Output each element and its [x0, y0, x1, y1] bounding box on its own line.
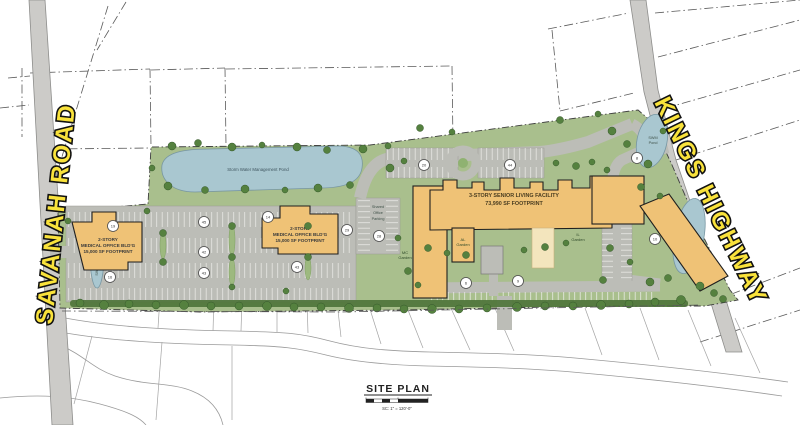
- site-plan-svg: Storm Water Management Pond SWM Pond SWM…: [0, 0, 800, 425]
- svg-text:19: 19: [111, 224, 116, 229]
- parking-count-badge: 42: [199, 247, 210, 258]
- tree-icon: [644, 160, 652, 168]
- tree-icon: [607, 245, 614, 252]
- tree-icon: [290, 303, 298, 311]
- parking-count-badge: 43: [199, 268, 210, 279]
- svg-text:10: 10: [653, 237, 658, 242]
- tree-icon: [259, 142, 265, 148]
- east-medical-label-3: 15,000 SF FOOTPRINT: [275, 238, 324, 243]
- entry-canopy: [481, 246, 503, 274]
- tree-icon: [595, 111, 601, 117]
- parking-count-badge: 20: [419, 160, 430, 171]
- tree-icon: [400, 305, 408, 313]
- tree-icon: [597, 301, 606, 310]
- tree-icon: [283, 288, 289, 294]
- tree-icon: [229, 223, 236, 230]
- storm-water-pond-label: Storm Water Management Pond: [227, 167, 289, 172]
- tree-icon: [677, 296, 686, 305]
- parking-count-badge: 16: [105, 272, 116, 283]
- tree-icon: [373, 304, 381, 312]
- tree-icon: [696, 282, 704, 290]
- svg-text:29: 29: [345, 228, 350, 233]
- scale-note: SC: 1" = 120'-0": [382, 406, 412, 411]
- tree-icon: [657, 193, 663, 199]
- tree-icon: [521, 247, 527, 253]
- shared-parking-label-3: Parking: [372, 217, 385, 221]
- tree-icon: [483, 304, 491, 312]
- tree-icon: [386, 164, 394, 172]
- parking-count-badge: 28: [374, 231, 385, 242]
- svg-text:43: 43: [295, 265, 300, 270]
- drawing-title: SITE PLAN: [366, 383, 430, 395]
- tree-icon: [563, 240, 569, 246]
- al-garden-label-2: Garden: [456, 242, 469, 247]
- tree-icon: [711, 290, 718, 297]
- shared-parking-label-2: Office: [373, 211, 383, 215]
- tree-icon: [324, 147, 331, 154]
- parking-count-badge: 44: [505, 160, 516, 171]
- tree-icon: [202, 187, 209, 194]
- tree-icon: [293, 143, 301, 151]
- tree-icon: [317, 303, 325, 311]
- svg-text:45: 45: [202, 220, 207, 225]
- tree-icon: [624, 141, 631, 148]
- tree-icon: [164, 182, 172, 190]
- tree-icon: [229, 284, 235, 290]
- tree-icon: [314, 184, 322, 192]
- shared-parking-label-1: Shared: [372, 205, 384, 209]
- tree-icon: [401, 158, 407, 164]
- mc-garden-label-2: Garden: [398, 255, 411, 260]
- senior-living-label-2: 73,990 SF FOOTPRINT: [485, 201, 543, 207]
- svg-text:16: 16: [108, 275, 113, 280]
- tree-icon: [305, 254, 312, 261]
- tree-icon: [385, 143, 391, 149]
- tree-icon: [100, 301, 109, 310]
- tree-icon: [720, 296, 727, 303]
- tree-icon: [359, 145, 367, 153]
- tree-icon: [415, 282, 421, 288]
- tree-icon: [455, 305, 463, 313]
- tree-icon: [569, 302, 577, 310]
- tree-icon: [627, 259, 633, 265]
- tree-icon: [428, 305, 437, 314]
- tree-icon: [542, 244, 549, 251]
- tree-icon: [125, 300, 133, 308]
- west-medical-label-1: 2-STORY: [98, 237, 118, 242]
- parking-count-badge: 43: [292, 262, 303, 273]
- tree-icon: [557, 117, 564, 124]
- tree-icon: [263, 302, 272, 311]
- tree-icon: [541, 302, 549, 310]
- tree-icon: [235, 302, 243, 310]
- tree-icon: [638, 184, 645, 191]
- tree-icon: [282, 187, 288, 193]
- parking-count-badge: 8: [632, 153, 643, 164]
- parking-count-badge: 9: [513, 276, 524, 287]
- tree-icon: [651, 298, 659, 306]
- tree-icon: [600, 277, 607, 284]
- tree-icon: [160, 259, 167, 266]
- tree-icon: [180, 301, 189, 310]
- tree-icon: [449, 129, 455, 135]
- ne-pond-label-1: SWM: [648, 136, 657, 140]
- tree-icon: [152, 301, 160, 309]
- tree-icon: [405, 268, 412, 275]
- parking-count-badge: 6: [461, 278, 472, 289]
- tree-icon: [241, 185, 249, 193]
- parking-count-badge: 29: [342, 225, 353, 236]
- tree-icon: [347, 182, 354, 189]
- tree-icon: [229, 254, 236, 261]
- east-medical-label-2: MEDICAL OFFICE BLD'G: [273, 232, 328, 237]
- svg-text:42: 42: [202, 250, 207, 255]
- site-plan-drawing: Storm Water Management Pond SWM Pond SWM…: [0, 0, 800, 425]
- svg-text:43: 43: [202, 271, 207, 276]
- tree-icon: [160, 230, 167, 237]
- svg-text:20: 20: [422, 163, 427, 168]
- tree-icon: [553, 160, 559, 166]
- tree-icon: [604, 167, 610, 173]
- svg-text:44: 44: [508, 163, 513, 168]
- tree-icon: [665, 275, 672, 282]
- tree-icon: [646, 278, 654, 286]
- south-drive: [420, 286, 660, 288]
- svg-text:14: 14: [266, 215, 271, 220]
- tree-icon: [149, 165, 155, 171]
- il-garden-label-2: Garden: [571, 237, 584, 242]
- tree-icon: [228, 143, 236, 151]
- tree-icon: [425, 245, 432, 252]
- west-medical-label-2: MEDICAL OFFICE BLD'G: [81, 243, 136, 248]
- parking-count-badge: 19: [108, 221, 119, 232]
- tree-icon: [345, 304, 354, 313]
- parking-count-badge: 45: [199, 217, 210, 228]
- west-medical-label-3: 15,000 SF FOOTPRINT: [83, 249, 132, 254]
- tree-icon: [608, 127, 616, 135]
- tree-icon: [395, 235, 401, 241]
- tree-icon: [444, 250, 450, 256]
- tree-icon: [589, 159, 595, 165]
- tree-icon: [573, 163, 580, 170]
- tree-icon: [305, 223, 312, 230]
- tree-icon: [195, 140, 202, 147]
- svg-text:28: 28: [377, 234, 382, 239]
- tree-icon: [417, 125, 424, 132]
- tree-icon: [463, 252, 470, 259]
- senior-living-label-1: 3-STORY SENIOR LIVING FACILITY: [469, 193, 559, 199]
- tree-icon: [76, 299, 84, 307]
- tree-icon: [513, 303, 522, 312]
- ne-pond-label-2: Pond: [649, 141, 658, 145]
- parking-count-badge: 10: [650, 234, 661, 245]
- tree-icon: [168, 142, 176, 150]
- tree-icon: [207, 302, 215, 310]
- tree-icon: [144, 208, 150, 214]
- parking-count-badge: 14: [263, 212, 274, 223]
